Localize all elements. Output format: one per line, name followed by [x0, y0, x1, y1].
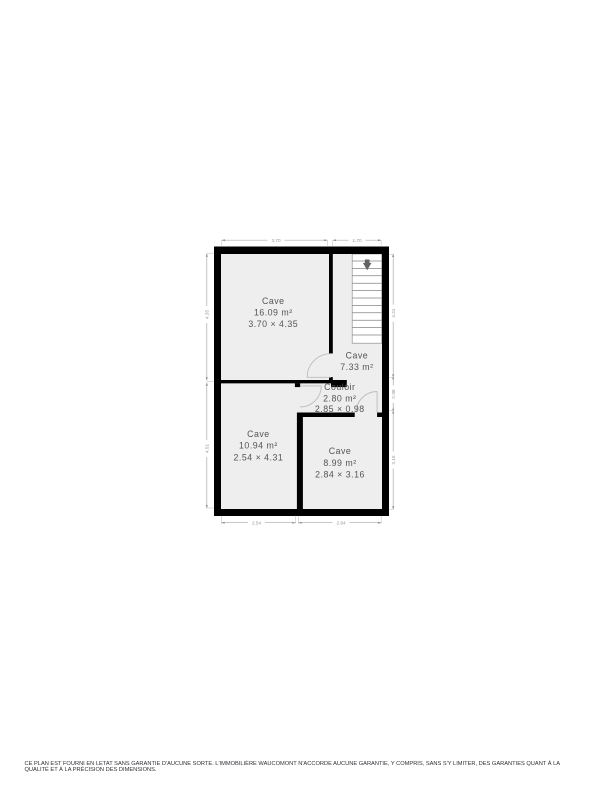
svg-text:3.70: 3.70: [271, 238, 281, 243]
svg-text:Couloir: Couloir: [324, 382, 355, 392]
svg-text:Cave: Cave: [262, 296, 285, 306]
svg-text:8.99 m²: 8.99 m²: [323, 458, 356, 468]
svg-text:7.33 m²: 7.33 m²: [340, 362, 373, 372]
svg-text:2.84: 2.84: [336, 521, 346, 526]
svg-text:1.70: 1.70: [352, 238, 362, 243]
svg-text:2.54 × 4.31: 2.54 × 4.31: [234, 452, 284, 462]
svg-text:4.35: 4.35: [205, 310, 210, 320]
svg-text:Cave: Cave: [329, 446, 352, 456]
svg-text:2.54: 2.54: [252, 521, 262, 526]
svg-text:Cave: Cave: [247, 429, 270, 439]
svg-text:16.09 m²: 16.09 m²: [254, 307, 293, 317]
svg-text:0.98: 0.98: [391, 389, 396, 399]
svg-text:10.94 m²: 10.94 m²: [239, 440, 278, 450]
svg-text:2.85 × 0.98: 2.85 × 0.98: [315, 404, 365, 414]
svg-text:2.80 m²: 2.80 m²: [323, 394, 356, 404]
svg-text:4.31: 4.31: [391, 308, 396, 318]
svg-text:Cave: Cave: [346, 350, 369, 360]
svg-text:2.84 × 3.16: 2.84 × 3.16: [315, 469, 365, 479]
svg-text:3.16: 3.16: [391, 455, 396, 465]
svg-text:4.51: 4.51: [205, 444, 210, 454]
svg-text:3.70 × 4.35: 3.70 × 4.35: [248, 319, 298, 329]
